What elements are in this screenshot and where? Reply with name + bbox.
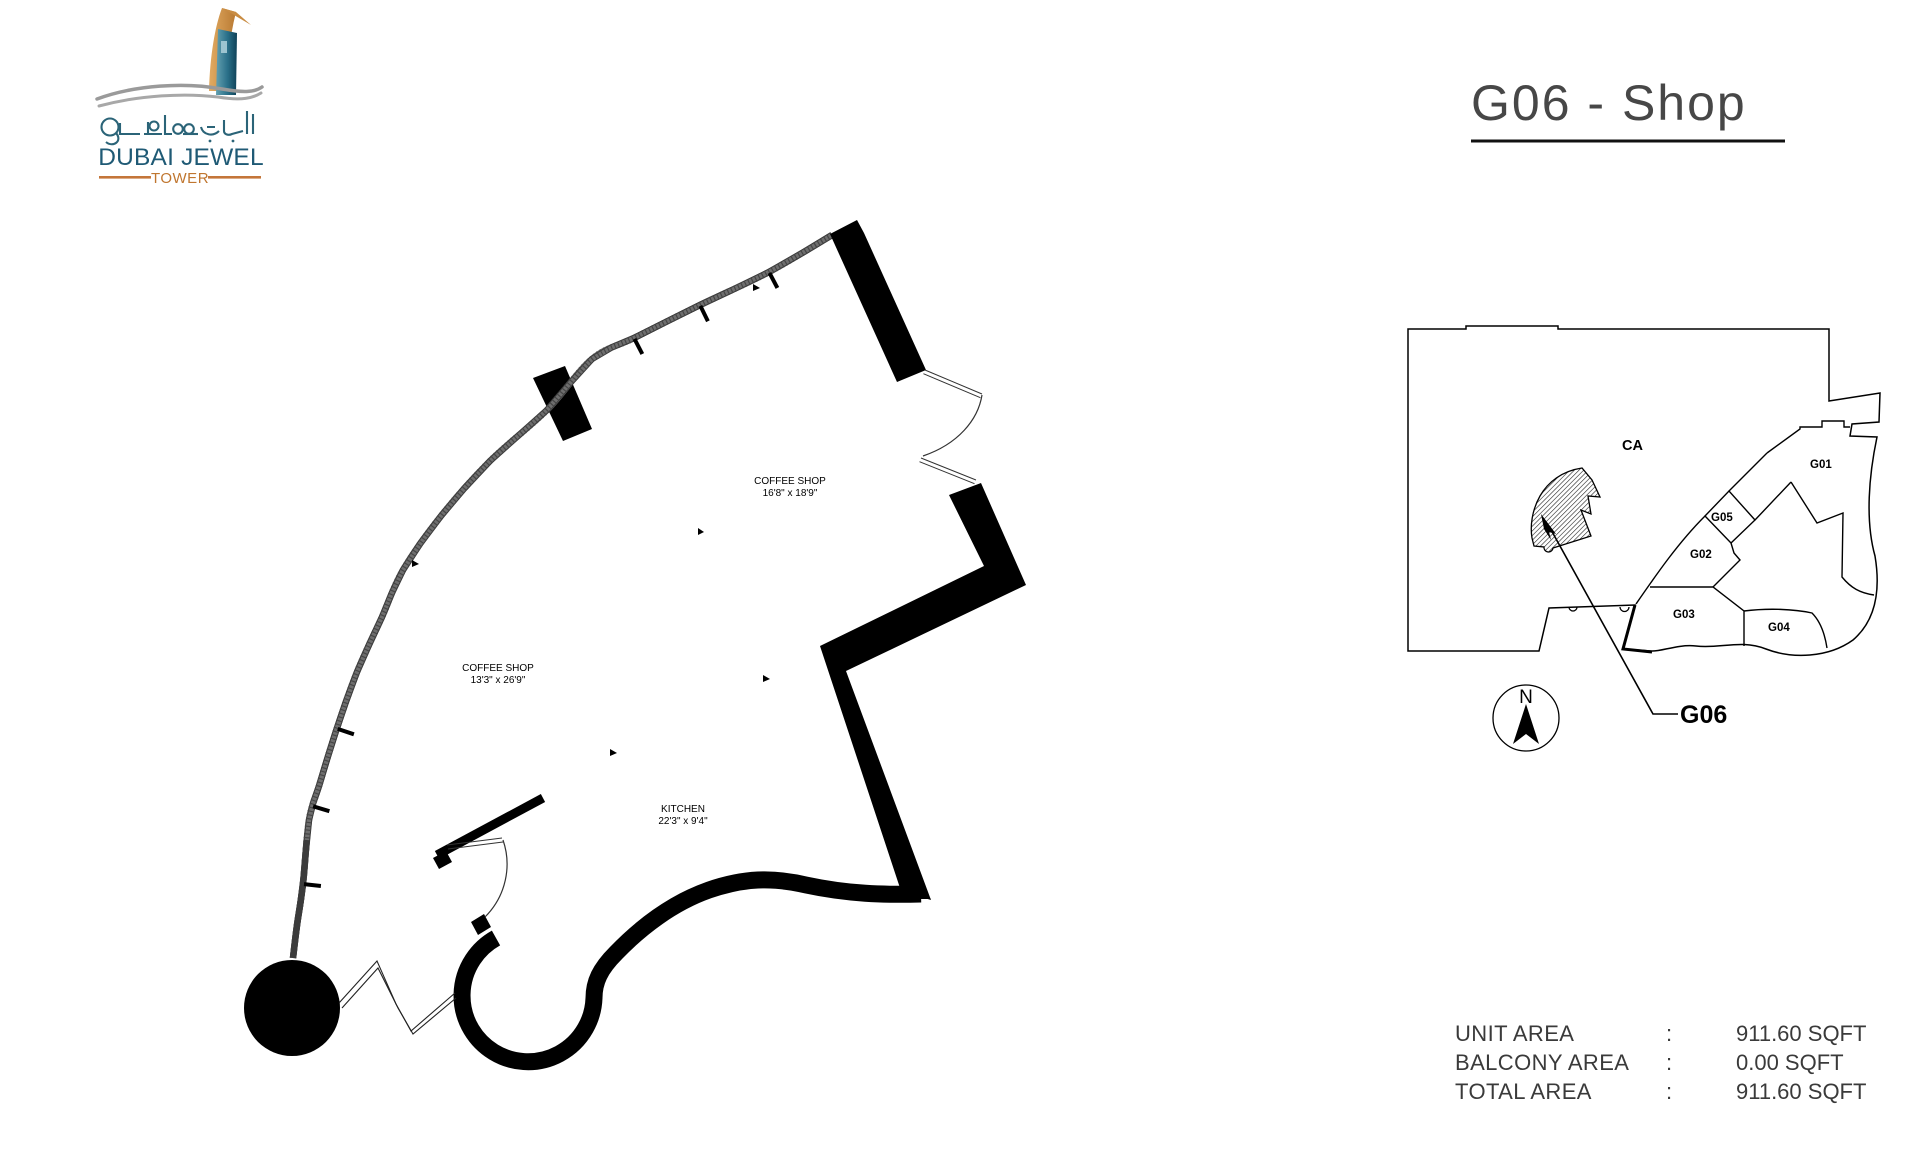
svg-text:TOWER: TOWER (151, 170, 209, 187)
svg-text::: : (1666, 1021, 1672, 1046)
svg-text::: : (1666, 1050, 1672, 1075)
svg-text:G02: G02 (1690, 549, 1712, 561)
svg-text:0.00 SQFT: 0.00 SQFT (1736, 1050, 1844, 1075)
svg-text:G04: G04 (1768, 622, 1790, 634)
svg-text:G01: G01 (1810, 459, 1832, 471)
svg-text:DUBAI JEWEL: DUBAI JEWEL (98, 144, 264, 171)
svg-text::: : (1666, 1079, 1672, 1104)
svg-text:911.60 SQFT: 911.60 SQFT (1736, 1021, 1866, 1046)
svg-text:G06: G06 (1680, 701, 1727, 729)
svg-text:COFFEE SHOP: COFFEE SHOP (462, 663, 534, 674)
svg-text:22'3" x 9'4": 22'3" x 9'4" (658, 816, 708, 827)
svg-text:KITCHEN: KITCHEN (661, 804, 705, 815)
svg-text:UNIT AREA: UNIT AREA (1455, 1021, 1574, 1046)
svg-text:G03: G03 (1673, 609, 1695, 621)
svg-text:G06 - Shop: G06 - Shop (1471, 75, 1747, 131)
svg-text:COFFEE SHOP: COFFEE SHOP (754, 476, 826, 487)
svg-text:TOTAL AREA: TOTAL AREA (1455, 1079, 1592, 1104)
svg-text:13'3" x 26'9": 13'3" x 26'9" (471, 675, 526, 686)
svg-text:BALCONY AREA: BALCONY AREA (1455, 1050, 1629, 1075)
svg-text:G05: G05 (1711, 512, 1733, 524)
svg-text:CA: CA (1622, 438, 1643, 454)
svg-text:16'8" x 18'9": 16'8" x 18'9" (763, 488, 818, 499)
svg-text:911.60 SQFT: 911.60 SQFT (1736, 1079, 1866, 1104)
